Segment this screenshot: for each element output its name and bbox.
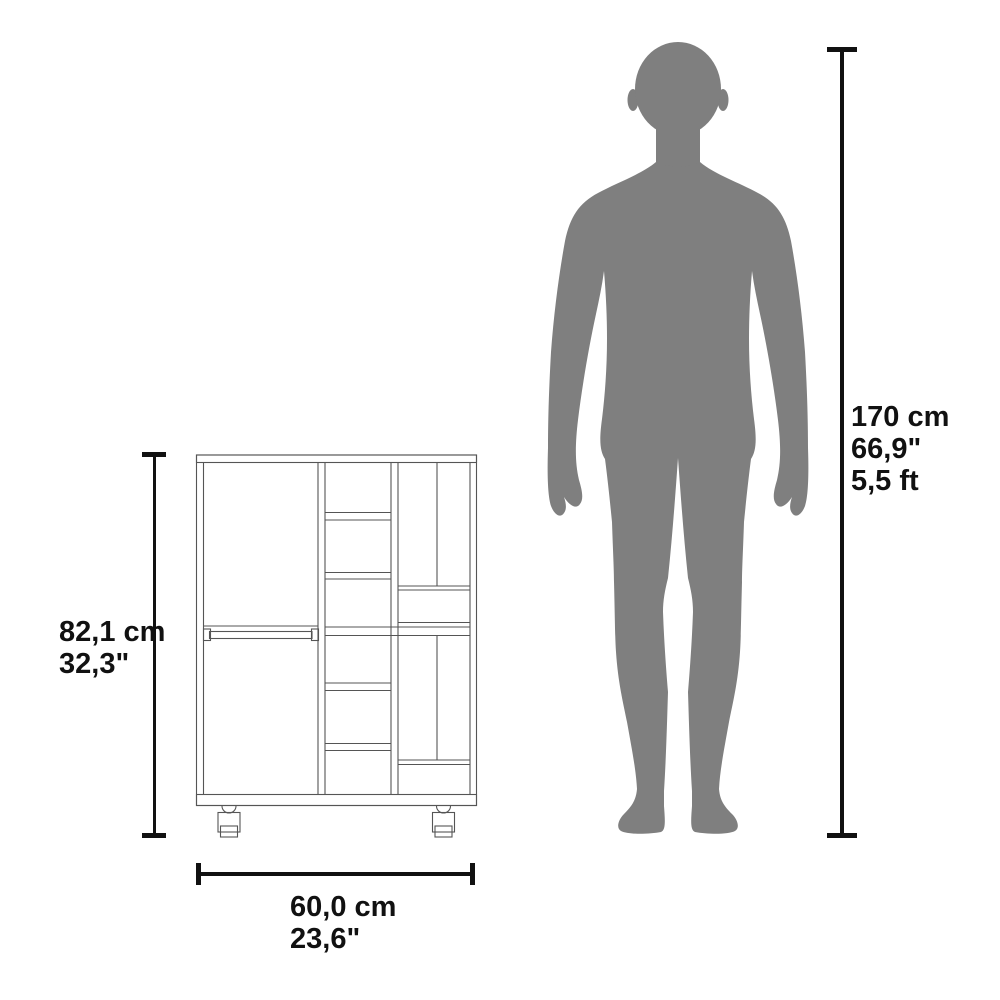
person-height-dimension-cap-bottom — [827, 833, 857, 838]
cabinet-height-cm: 82,1 cm — [59, 616, 165, 648]
cabinet-height-dimension-cap-bottom — [142, 833, 166, 838]
cabinet-lines — [197, 455, 477, 837]
person-height-cm: 170 cm — [851, 401, 949, 433]
cabinet-bottom-board — [197, 795, 477, 806]
person-height-ft: 5,5 ft — [851, 465, 949, 497]
cabinet-hanging-rod — [210, 632, 313, 639]
cabinet-line-drawing — [190, 450, 482, 845]
cabinet-width-dimension-cap-left — [196, 863, 201, 885]
person-silhouette-shape — [548, 42, 809, 834]
cabinet-width-dimension-line — [197, 872, 474, 876]
cabinet-outline — [197, 455, 477, 806]
caster-left-icon — [218, 806, 240, 837]
cabinet-height-label: 82,1 cm 32,3" — [59, 616, 165, 680]
cabinet-width-dimension-cap-right — [470, 863, 475, 885]
cabinet-width-cm: 60,0 cm — [290, 891, 396, 923]
cabinet-width-in: 23,6" — [290, 923, 396, 955]
person-height-dimension-line — [840, 48, 844, 838]
person-neck — [656, 112, 700, 168]
cabinet-height-dimension-cap-top — [142, 452, 166, 457]
person-height-label: 170 cm 66,9" 5,5 ft — [851, 401, 949, 497]
caster-right-icon — [433, 806, 455, 837]
person-body — [548, 162, 809, 834]
person-height-in: 66,9" — [851, 433, 949, 465]
person-height-dimension-cap-top — [827, 47, 857, 52]
cabinet-top-board — [197, 455, 477, 463]
cabinet-height-in: 32,3" — [59, 648, 165, 680]
cabinet-width-label: 60,0 cm 23,6" — [290, 891, 396, 955]
dimension-diagram: 82,1 cm 32,3" 60,0 cm 23,6" 170 cm 66,9"… — [0, 0, 1000, 1000]
person-silhouette — [520, 38, 820, 838]
